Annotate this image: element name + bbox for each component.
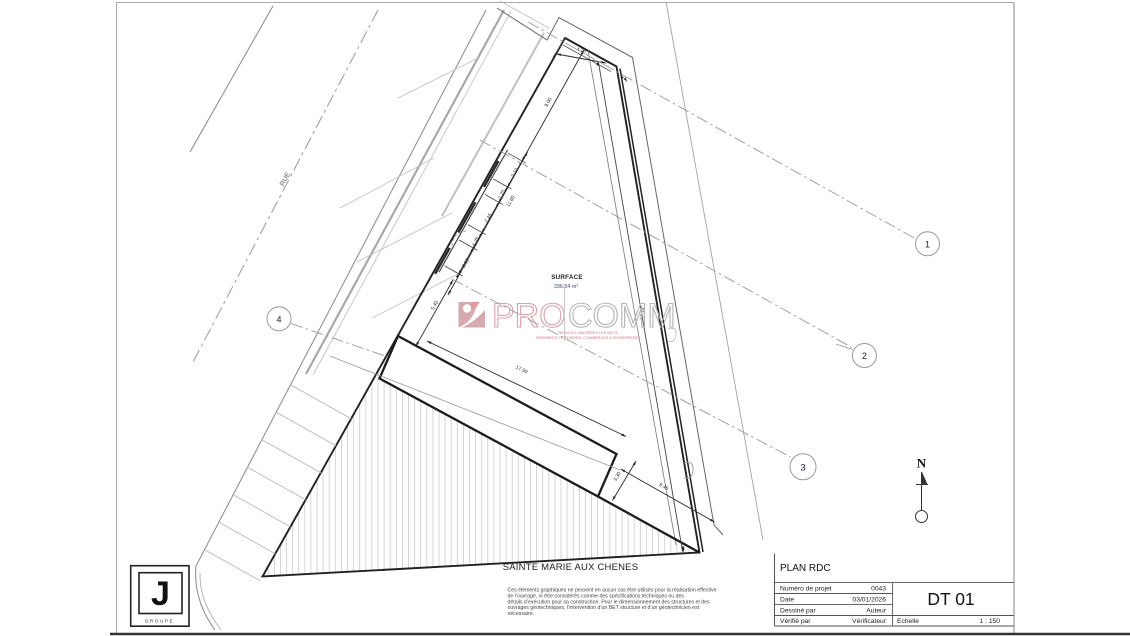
svg-text:GROUPE: GROUPE	[145, 619, 175, 624]
svg-text:Echelle: Echelle	[897, 618, 919, 625]
svg-text:Dessiné par: Dessiné par	[780, 608, 816, 615]
svg-text:RE 54 921 MAIZIERES LES METZ: RE 54 921 MAIZIERES LES METZ	[558, 331, 618, 335]
svg-text:0043: 0043	[871, 586, 886, 593]
svg-text:03/01/2026: 03/01/2026	[853, 597, 887, 604]
svg-text:BATIMENTS TERTIAIRES, COMMERCE: BATIMENTS TERTIAIRES, COMMERCES & ENTREP…	[536, 336, 640, 340]
svg-text:Date: Date	[780, 597, 794, 604]
svg-text:DT 01: DT 01	[927, 589, 974, 609]
svg-text:COMM: COMM	[568, 297, 676, 335]
svg-text:Numéro de projet: Numéro de projet	[780, 586, 832, 593]
svg-text:1 : 150: 1 : 150	[980, 618, 1001, 625]
svg-text:ouvrages géotechniques, l’inte: ouvrages géotechniques, l’intervention d…	[508, 605, 700, 611]
svg-text:Vérifié par: Vérifié par	[780, 618, 811, 625]
svg-text:N: N	[917, 456, 927, 471]
svg-text:Auteur: Auteur	[866, 608, 886, 615]
svg-text:J: J	[151, 575, 170, 613]
svg-text:3: 3	[800, 463, 805, 474]
svg-text:PRO: PRO	[492, 297, 566, 335]
svg-text:4: 4	[276, 314, 281, 324]
svg-text:PLAN RDC: PLAN RDC	[780, 563, 831, 574]
svg-text:SURFACE: SURFACE	[551, 274, 583, 281]
svg-text:Vérificateur: Vérificateur	[852, 618, 887, 625]
svg-text:336.54 m²: 336.54 m²	[554, 284, 578, 290]
svg-text:1: 1	[925, 239, 930, 249]
svg-text:nécessaire.: nécessaire.	[508, 611, 535, 617]
svg-text:2: 2	[862, 351, 867, 361]
svg-text:SAINTE MARIE AUX CHENES: SAINTE MARIE AUX CHENES	[503, 562, 639, 573]
